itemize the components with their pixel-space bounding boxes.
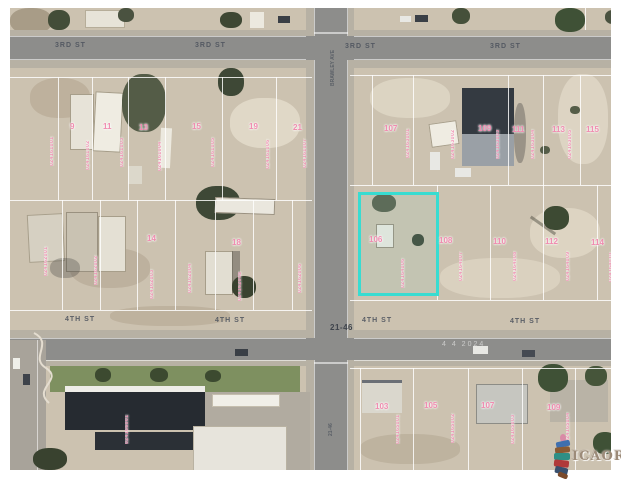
shed	[128, 166, 142, 184]
parcel-line	[137, 200, 138, 310]
apn-label: 024165001	[396, 398, 403, 444]
terrain-patch	[440, 258, 560, 298]
parcel-line	[62, 200, 63, 310]
terrain-patch	[110, 306, 230, 326]
apn-label: 024164009	[566, 231, 573, 281]
tree	[452, 8, 470, 24]
terrain-patch	[360, 434, 460, 464]
parcel-line	[468, 368, 469, 470]
apn-label: 024161005	[211, 109, 218, 167]
apn-label: 024164006	[401, 222, 408, 288]
street-name-label-4th: 4TH ST	[65, 316, 95, 323]
rv-vehicle	[250, 12, 264, 28]
parcel-line	[350, 185, 611, 186]
parcel-line	[522, 368, 523, 470]
shrub	[220, 12, 242, 28]
building-roof	[193, 426, 287, 470]
street-name-label-vertical: BRAWLEY AVE	[330, 38, 336, 86]
lot-number-label: 21	[293, 123, 302, 132]
lot-number-label: 110	[493, 237, 506, 246]
parcel-line	[10, 310, 312, 311]
lot-number-label: 106	[369, 235, 382, 244]
tree	[95, 368, 111, 382]
parcel-line	[253, 200, 254, 310]
apn-label: 024161006	[266, 111, 273, 169]
carport	[212, 394, 280, 407]
apn-label: 024162004	[188, 235, 195, 293]
dirt-tracks	[24, 328, 84, 418]
lot-number-label: 107	[481, 401, 494, 410]
shrub	[605, 10, 611, 24]
shrub	[570, 106, 580, 114]
apn-label: 024164008	[513, 231, 520, 281]
lot-number-label: 13	[139, 123, 148, 132]
parcel-line	[413, 75, 414, 185]
apn-label: 024162002	[94, 227, 101, 285]
lot-number-label: 112	[545, 237, 558, 246]
street-name-label-4th: 4TH ST	[215, 317, 245, 324]
parcel-line	[490, 185, 491, 300]
stop-line	[314, 32, 348, 34]
car	[400, 16, 411, 22]
lot-number-label: 109	[478, 124, 491, 133]
road-edge-line	[314, 8, 315, 470]
parcel-line	[10, 200, 312, 201]
apn-label: 024163003	[496, 119, 503, 159]
apn-label: 024165002	[451, 395, 458, 443]
house-body	[462, 134, 514, 166]
street-name-label-3rd: 3RD ST	[195, 42, 226, 49]
subject-parcel-highlight	[358, 192, 439, 296]
parcel-line	[215, 200, 216, 310]
street-name-label-3rd: 3RD ST	[490, 43, 521, 50]
tree	[118, 8, 134, 22]
parcel-line	[350, 75, 611, 76]
apn-label: 024163004	[531, 117, 538, 159]
imagery-date-watermark: 4 4 2024	[442, 341, 485, 348]
apn-label: 024162003	[150, 239, 157, 299]
apn-label: 024163002	[451, 117, 458, 159]
car	[455, 168, 471, 177]
lot-number-label: 111	[512, 125, 524, 134]
terrain-patch	[230, 98, 300, 148]
parcel-line	[165, 77, 166, 200]
lot-number-label: 15	[192, 122, 201, 131]
apn-label: 024162006	[298, 237, 305, 293]
shrub	[540, 146, 550, 154]
lot-number-label: 107	[384, 124, 397, 133]
street-name-label-3rd: 3RD ST	[55, 42, 86, 49]
terrain-patch	[370, 78, 450, 118]
parcel-line	[372, 75, 373, 185]
car	[522, 350, 535, 357]
parcel-line	[543, 185, 544, 300]
tree	[585, 366, 607, 386]
car	[278, 16, 290, 23]
car	[13, 358, 20, 369]
apn-label: 024163001	[406, 114, 413, 158]
street-name-label-vertical: 21-46	[328, 402, 334, 436]
icaor-logo: ICAOR	[550, 433, 620, 479]
terrain-patch	[558, 74, 608, 164]
apn-label: 024166001	[125, 396, 132, 444]
lot-number-label: 9	[70, 122, 74, 131]
apn-label: 024162005	[238, 243, 245, 301]
apn-label: 024165003	[511, 398, 518, 444]
parcel-line	[580, 75, 581, 185]
shadow	[50, 258, 80, 278]
apn-label: 024161001	[50, 108, 57, 166]
apn-label: 024163005	[568, 119, 575, 159]
parcel-line	[543, 75, 544, 185]
van	[430, 152, 440, 170]
apn-label: 024162001	[44, 220, 51, 276]
lot-number-label: 113	[552, 125, 565, 134]
apn-label: 024164007	[459, 229, 466, 281]
mobile-home	[98, 216, 126, 272]
lot-number-label: 114	[591, 238, 604, 247]
parcel-line	[175, 200, 176, 310]
apn-label: 024161003	[120, 107, 127, 167]
lot-number-label: 11	[103, 122, 111, 131]
tree	[205, 370, 221, 382]
tree	[150, 368, 168, 382]
car	[235, 349, 248, 356]
apn-label: 024161002	[86, 112, 93, 170]
parcel-line	[360, 368, 361, 470]
road-edge-line	[347, 8, 348, 470]
parcel-line	[128, 77, 129, 200]
mls-map-page: 3RD ST3RD ST3RD ST3RD ST4TH ST4TH ST4TH …	[0, 0, 621, 480]
lot-number-label: 109	[547, 403, 560, 412]
tree	[33, 448, 67, 470]
parcel-line	[292, 200, 293, 310]
lot-number-label: 103	[375, 402, 388, 411]
parcel-line	[10, 77, 312, 78]
shed	[205, 251, 233, 295]
road-block-marker: 21-46	[330, 323, 353, 332]
apn-label: 024161007	[303, 108, 310, 168]
lot-number-label: 19	[249, 122, 258, 131]
icaor-logo-text: ICAOR	[572, 449, 621, 464]
parcel-line	[585, 8, 586, 30]
lot-number-label: 115	[586, 125, 599, 134]
apn-label: 024164010	[609, 232, 611, 282]
tree	[48, 10, 70, 30]
parcel-line	[350, 300, 611, 301]
street-name-label-4th: 4TH ST	[362, 317, 392, 324]
building-roof	[95, 432, 205, 450]
car	[415, 15, 428, 22]
intersection	[306, 338, 354, 360]
parcel-line	[276, 77, 277, 200]
parcel-line	[413, 368, 414, 470]
aerial-parcel-map: 3RD ST3RD ST3RD ST3RD ST4TH ST4TH ST4TH …	[10, 8, 611, 470]
stop-line	[314, 362, 348, 364]
tree	[555, 8, 585, 32]
parcel-line	[350, 368, 611, 369]
lot-number-label: 108	[439, 236, 452, 245]
street-name-label-3rd: 3RD ST	[345, 43, 376, 50]
parcel-line	[58, 77, 59, 200]
parcel-line	[508, 75, 509, 185]
parcel-line	[222, 77, 223, 200]
street-name-label-4th: 4TH ST	[510, 318, 540, 325]
apn-label: 024161004	[158, 111, 165, 171]
building-roof	[65, 392, 205, 430]
lot-number-label: 105	[424, 401, 437, 410]
